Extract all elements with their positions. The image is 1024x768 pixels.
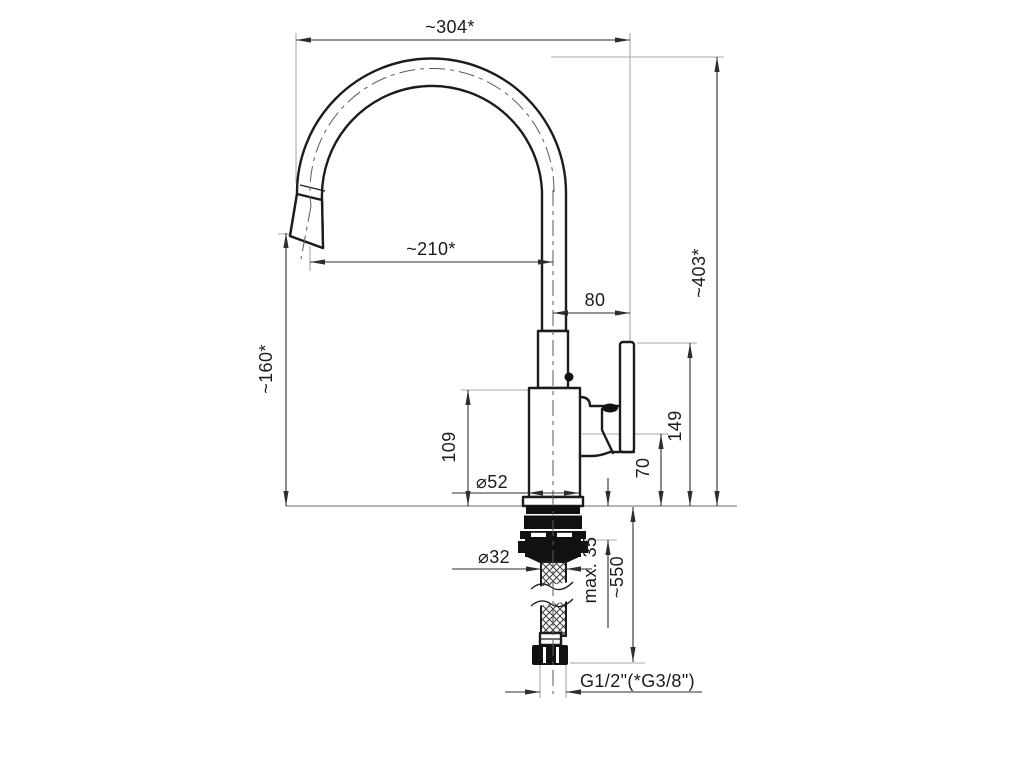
dim-lever-pivot-height: 70: [633, 434, 661, 506]
lever-pivot: [602, 404, 618, 413]
spout-tube: [290, 58, 566, 331]
lever-linkage: [602, 409, 613, 453]
dim-hose-length: ~550: [607, 507, 633, 662]
dim-spout-reach: ~210*: [310, 239, 553, 262]
label-max-counter-thickness: max. 35: [580, 537, 600, 604]
extension-lines: [278, 33, 737, 698]
label-base-diameter: ⌀52: [476, 472, 508, 492]
label-hose-length: ~550: [607, 556, 627, 598]
joint-pin: [565, 373, 574, 382]
label-overall-height: ~403*: [689, 248, 709, 298]
dim-spout-height: ~160*: [256, 233, 286, 506]
label-handle-top-height: 149: [665, 410, 685, 441]
centerlines: [301, 68, 554, 694]
dim-body-top-height: 109: [439, 390, 468, 506]
faucet-technical-drawing: ~304* ~403* ~210* ~160* 80 149 70 109: [0, 0, 1024, 768]
label-mounting-hole-diameter: ⌀32: [478, 547, 510, 567]
dim-handle-top-height: 149: [665, 343, 690, 506]
drawing-canvas: ~304* ~403* ~210* ~160* 80 149 70 109: [0, 0, 1024, 768]
label-pipe-to-handle: 80: [585, 290, 606, 310]
faucet-outline: [290, 58, 634, 506]
label-spout-reach: ~210*: [406, 239, 456, 259]
hex-fitting: [532, 645, 568, 665]
dim-spout-projection: ~304*: [296, 17, 630, 40]
label-lever-pivot-height: 70: [633, 458, 653, 479]
faucet-body: [529, 388, 580, 497]
handle-bar: [620, 342, 634, 452]
spout-nozzle: [290, 194, 323, 248]
label-spout-height: ~160*: [256, 344, 276, 394]
dim-overall-height: ~403*: [689, 57, 717, 506]
label-body-top-height: 109: [439, 431, 459, 462]
label-connection-thread: G1/2"(*G3/8"): [580, 671, 695, 691]
dim-connection-thread: G1/2"(*G3/8"): [505, 671, 702, 692]
label-spout-projection: ~304*: [425, 17, 475, 37]
